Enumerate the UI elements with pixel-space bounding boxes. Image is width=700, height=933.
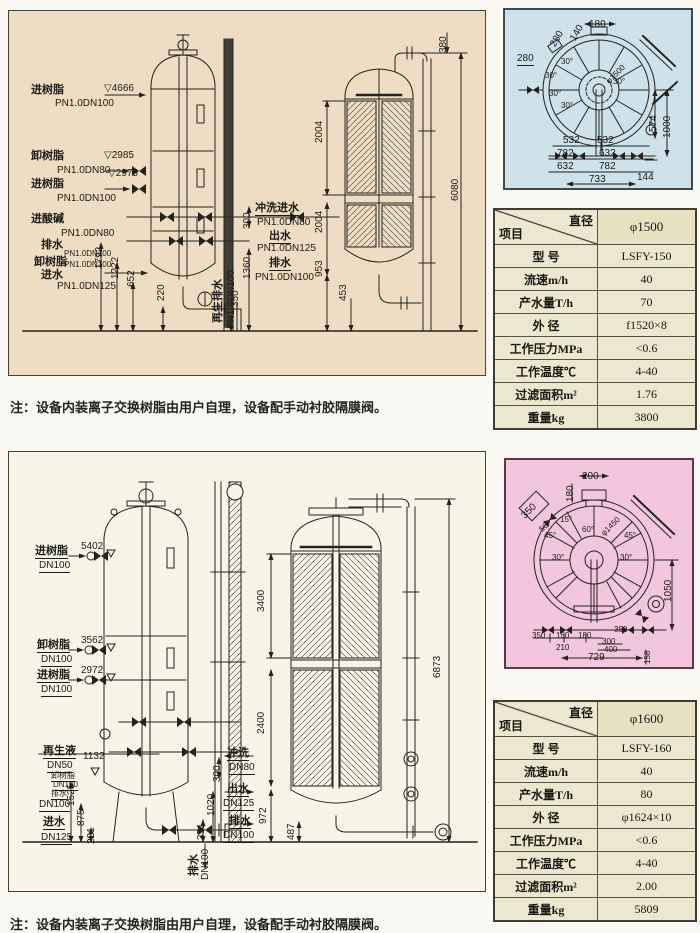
row-label: 重量kg [495, 406, 598, 428]
row-label: 产水量T/h [495, 783, 598, 805]
header-diameter: 直径 [569, 212, 593, 229]
dim-label: 30° [545, 72, 557, 80]
table-row: 流速m/h40 [495, 267, 695, 290]
dim-label: 532 [597, 136, 614, 146]
row-value: LSFY-150 [598, 245, 695, 267]
dim-label: 380 [439, 36, 449, 53]
port-label: 进树脂 [31, 179, 64, 190]
row-value: 80 [598, 783, 695, 805]
dim-label: 30° [561, 58, 573, 66]
dim-label: 2400 [257, 712, 267, 734]
top-assembly-drawing: 进树脂PN1.0DN100▽4666卸树脂▽2985PN1.0DN80▽2975… [8, 10, 486, 376]
dim-label: DN100 [223, 831, 254, 843]
spec-table-lsfy-150: 直径 项目 φ1500 型 号LSFY-150 流速m/h40 产水量T/h70… [493, 208, 697, 430]
row-label: 产水量T/h [495, 291, 598, 313]
row-value: φ1624×10 [598, 806, 695, 828]
note-bottom: 注：设备内装离子交换树脂由用户自理，设备配手动衬胶隔膜阀。 [10, 914, 484, 933]
dim-label: 300 [213, 765, 223, 782]
diagonal-header-cell: 直径 项目 [495, 210, 598, 244]
table-row: 流速m/h40 [495, 759, 695, 782]
row-value: 4-40 [598, 360, 695, 382]
dim-label: 144 [637, 173, 654, 183]
dim-label: 2004 [315, 121, 325, 143]
dim-label: PN1.0DN125 [257, 244, 316, 254]
dim-label: 782 [557, 149, 574, 159]
port-label: 排水 [269, 258, 291, 271]
dim-label: 180 [589, 20, 606, 30]
dim-label: 6873 [433, 656, 443, 678]
dim-label: 3400 [257, 590, 267, 612]
spec-table-lsfy-160: 直径 项目 φ1600 型 号LSFY-160 流速m/h40 产水量T/h80… [493, 700, 697, 922]
table-row: 过滤面积m²1.76 [495, 382, 695, 405]
row-value: 5809 [598, 898, 695, 920]
dim-label: 652 [127, 270, 137, 287]
dim-label: DN100 [41, 655, 72, 667]
row-label: 工作温度℃ [495, 360, 598, 382]
dim-label: PN1.0DN125 [57, 282, 116, 292]
dim-label: 210 [556, 644, 569, 652]
dim-label: PN1.0DN80 [257, 218, 310, 228]
dim-label: 15° [560, 516, 572, 524]
dim-label: 30° [561, 102, 573, 110]
dim-label: 1000 [663, 116, 673, 138]
dim-label: DN100 [39, 561, 70, 573]
header-diameter: 直径 [569, 704, 593, 721]
header-diameter-value: φ1600 [598, 702, 695, 736]
dim-label: 733 [589, 175, 606, 185]
row-label: 外 径 [495, 806, 598, 828]
dim-label: 180 [578, 632, 591, 640]
row-value: 40 [598, 760, 695, 782]
dim-label: 453 [339, 284, 349, 301]
port-label: 冲洗 [227, 748, 249, 761]
row-label: 外 径 [495, 314, 598, 336]
table-row: 工作压力MPa<0.6 [495, 828, 695, 851]
dim-label: 2004 [315, 211, 325, 233]
row-value: <0.6 [598, 337, 695, 359]
row-label: 工作温度℃ [495, 852, 598, 874]
port-label: 进水 [43, 817, 65, 830]
dim-label: 200 [582, 472, 599, 482]
dim-label: DN125 [41, 833, 72, 845]
header-diameter-value: φ1500 [598, 210, 695, 244]
dim-label: 632 [599, 149, 616, 159]
row-value: 70 [598, 291, 695, 313]
dim-label: 1360 [243, 257, 253, 279]
dim-label: 487 [287, 823, 297, 840]
dim-label: 280 [517, 54, 534, 66]
dim-label: 1050 [664, 580, 674, 602]
table-row: 外 径f1520×8 [495, 313, 695, 336]
header-item: 项目 [499, 717, 523, 734]
row-value: 3800 [598, 406, 695, 428]
row-value: <0.6 [598, 829, 695, 851]
dim-label: 60° [582, 526, 594, 534]
table-row: 外 径φ1624×10 [495, 805, 695, 828]
row-label: 重量kg [495, 898, 598, 920]
table-row: 过滤面积m²2.00 [495, 874, 695, 897]
dim-label: 1792 [95, 247, 105, 269]
port-label: 出水 [227, 784, 249, 797]
dim-label: 1020 [207, 794, 217, 816]
table-row: 型 号LSFY-160 [495, 736, 695, 759]
dim-label: DN80 [229, 763, 255, 775]
row-value: LSFY-160 [598, 737, 695, 759]
dim-label: PN1.0DN100 [55, 99, 114, 109]
port-label: 进水 [41, 270, 63, 281]
blue-view-svg [505, 10, 691, 188]
row-label: 型 号 [495, 245, 598, 267]
note-top: 注：设备内装离子交换树脂由用户自理，设备配手动衬胶隔膜阀。 [10, 397, 484, 416]
row-value: 4-40 [598, 852, 695, 874]
port-label: 排水 [41, 240, 63, 251]
dim-label: DN125 [223, 799, 254, 811]
dim-label: 782 [599, 162, 616, 172]
port-label: 冲洗进水 [255, 203, 299, 216]
table-header: 直径 项目 φ1500 [495, 210, 695, 244]
dim-label: 351 [197, 823, 207, 840]
dim-label: 532 [563, 136, 580, 146]
top-view-diagram-pink: 2001803505615°45°45°60°φ145030°30°105035… [504, 458, 694, 669]
dim-label: 158 [644, 651, 652, 664]
port-label: 进酸碱 [31, 214, 64, 225]
port-label: 进树脂 [31, 85, 64, 96]
dim-label: ▽2985 [104, 151, 134, 161]
table-row: 工作温度℃4-40 [495, 359, 695, 382]
dim-label: 729 [588, 653, 605, 663]
dim-label: PN1.0DN100 [57, 194, 116, 204]
dim-label: PN1.0DN80 [61, 229, 114, 239]
row-value: 40 [598, 268, 695, 290]
dim-label: 350 [532, 632, 545, 640]
dim-label: 30° [552, 554, 564, 562]
dim-label: 3562 [81, 636, 103, 646]
dim-label: PN1.0DN80 [57, 166, 110, 176]
dim-label: DN100 [201, 849, 211, 880]
dim-label: 45° [624, 532, 636, 540]
dim-label: 875 [77, 809, 87, 826]
row-value: 2.00 [598, 875, 695, 897]
port-label: 进树脂 [37, 670, 70, 683]
row-label: 流速m/h [495, 268, 598, 290]
port-label: 卸树脂 [31, 151, 64, 162]
port-label: 卸树脂 [34, 257, 67, 268]
dim-label: 1525 [67, 784, 77, 806]
dim-label: 30° [549, 90, 561, 98]
table-header: 直径 项目 φ1600 [495, 702, 695, 736]
dim-label: 180 [566, 485, 576, 502]
table-row: 重量kg3800 [495, 405, 695, 428]
dim-label: 2972 [81, 666, 103, 676]
header-item: 项目 [499, 225, 523, 242]
row-value: f1520×8 [598, 314, 695, 336]
dim-label: 150 [556, 632, 569, 640]
row-label: 过滤面积m² [495, 383, 598, 405]
top-view-diagram-blue: 18014028028030°30°30°30°30°φ150057410005… [503, 8, 693, 190]
dim-label: ▽4666 [104, 84, 134, 94]
dim-label: 221 [87, 827, 97, 844]
row-label: 工作压力MPa [495, 829, 598, 851]
dim-label: 300 [243, 212, 253, 229]
port-label: 卸树脂 [37, 640, 70, 653]
table-row: 产水量T/h80 [495, 782, 695, 805]
dim-label: PN1.0DN100 [227, 270, 237, 329]
dim-label: 6080 [451, 179, 461, 201]
table-row: 产水量T/h70 [495, 290, 695, 313]
dim-label: 953 [315, 260, 325, 277]
row-label: 工作压力MPa [495, 337, 598, 359]
row-value: 1.76 [598, 383, 695, 405]
row-label: 型 号 [495, 737, 598, 759]
row-label: 过滤面积m² [495, 875, 598, 897]
table-row: 型 号LSFY-150 [495, 244, 695, 267]
dim-label: 972 [259, 807, 269, 824]
dim-label: PN1.0DN100 [255, 273, 314, 283]
diagonal-header-cell: 直径 项目 [495, 702, 598, 736]
bottom-assembly-drawing: 进树脂DN1005402卸树脂DN1003562进树脂DN1002972再生液D… [8, 451, 486, 892]
port-label: 进树脂 [35, 546, 68, 559]
dim-label: 220 [157, 284, 167, 301]
port-label: 再生液 [43, 746, 76, 759]
dim-label: ▽2975 [108, 169, 138, 179]
port-label: 排水 [189, 854, 200, 876]
port-label: 再生排水 [213, 279, 224, 323]
dim-label: 1222 [111, 257, 121, 279]
dim-label: 45° [544, 532, 556, 540]
table-row: 工作压力MPa<0.6 [495, 336, 695, 359]
dim-label: 30° [620, 554, 632, 562]
table-row: 工作温度℃4-40 [495, 851, 695, 874]
dim-label: 400 [604, 646, 617, 654]
table-row: 重量kg5809 [495, 897, 695, 920]
dim-label: 574 [649, 115, 659, 132]
dim-label: DN100 [41, 685, 72, 697]
catalog-page: { "note_top": "注：设备内装离子交换树脂由用户自理，设备配手动衬胶… [0, 0, 700, 923]
dim-label: 1132 [83, 752, 105, 762]
dim-label: 350 [614, 626, 627, 634]
dim-label: 632 [557, 162, 574, 172]
dim-label: 5402 [81, 542, 103, 552]
port-label: 排水 [229, 816, 251, 829]
row-label: 流速m/h [495, 760, 598, 782]
